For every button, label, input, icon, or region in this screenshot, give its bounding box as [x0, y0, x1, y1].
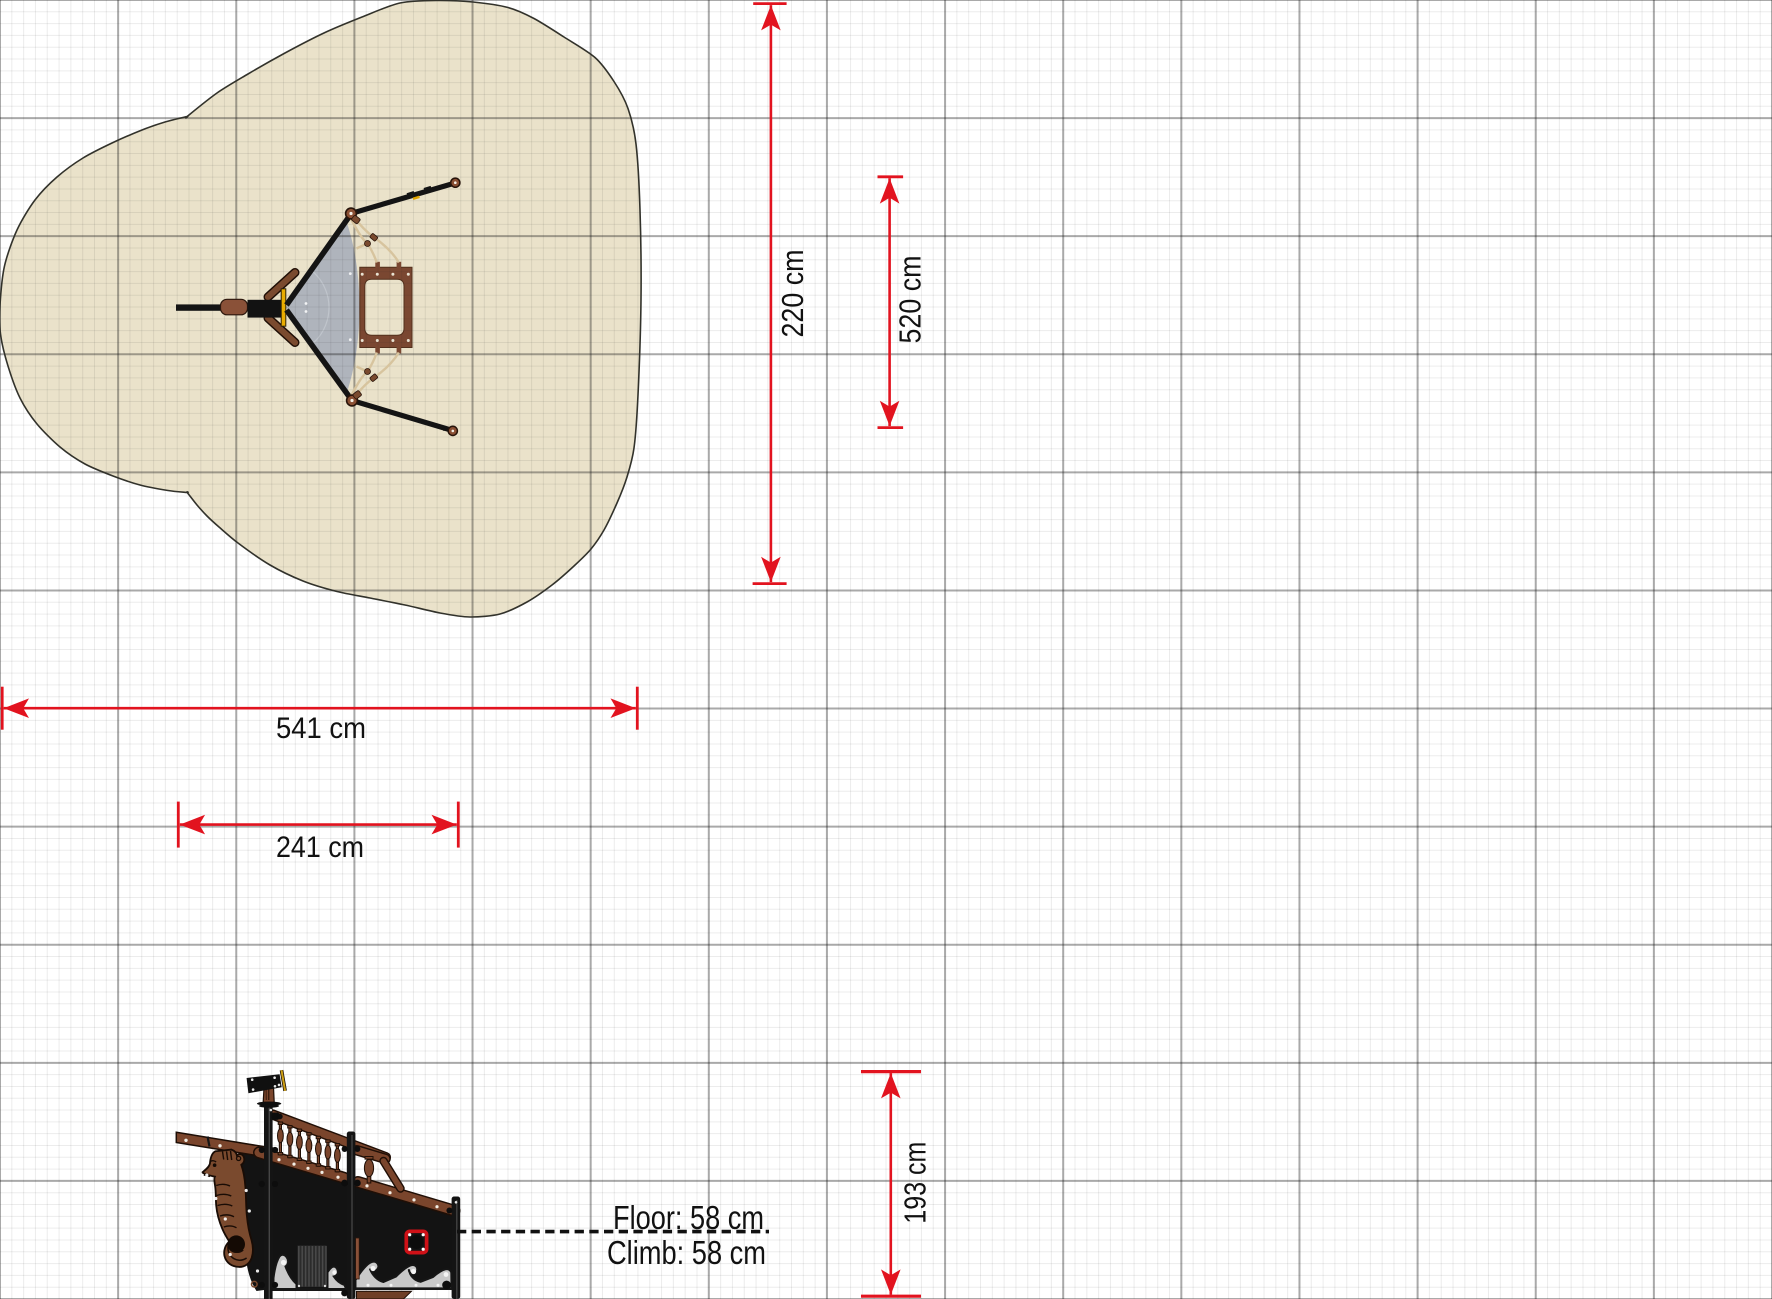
svg-text:520 cm: 520 cm [893, 256, 928, 344]
svg-text:Floor: 58 cm: Floor: 58 cm [613, 1199, 764, 1236]
svg-text:Climb: 58 cm: Climb: 58 cm [607, 1234, 766, 1271]
svg-text:241 cm: 241 cm [276, 831, 364, 864]
svg-text:220 cm: 220 cm [775, 250, 810, 338]
svg-text:193 cm: 193 cm [897, 1142, 932, 1224]
svg-text:541 cm: 541 cm [276, 712, 366, 745]
